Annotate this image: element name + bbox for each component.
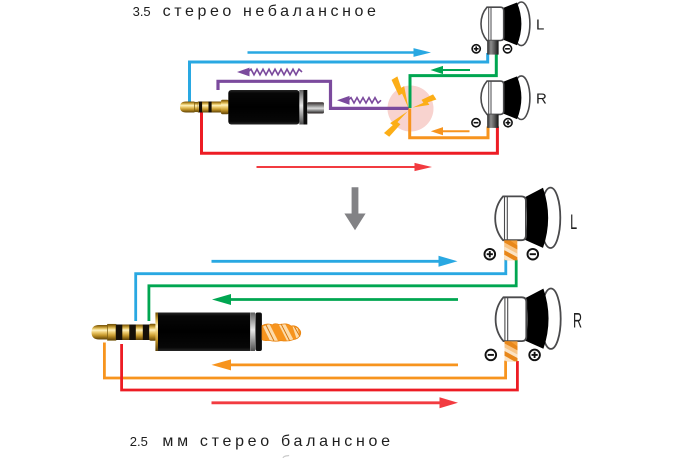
svg-text:R: R: [536, 91, 547, 108]
svg-text:R: R: [573, 308, 582, 332]
svg-text:L: L: [570, 210, 577, 234]
svg-text:L: L: [536, 17, 544, 34]
svg-text:стерео небалансное: стерео небалансное: [163, 3, 380, 20]
svg-text:мм стерео балансное: мм стерео балансное: [162, 453, 393, 458]
svg-text:2.5: 2.5: [130, 434, 148, 449]
svg-text:3.5: 3.5: [133, 4, 151, 19]
svg-text:мм стерео балансное: мм стерео балансное: [162, 433, 393, 450]
